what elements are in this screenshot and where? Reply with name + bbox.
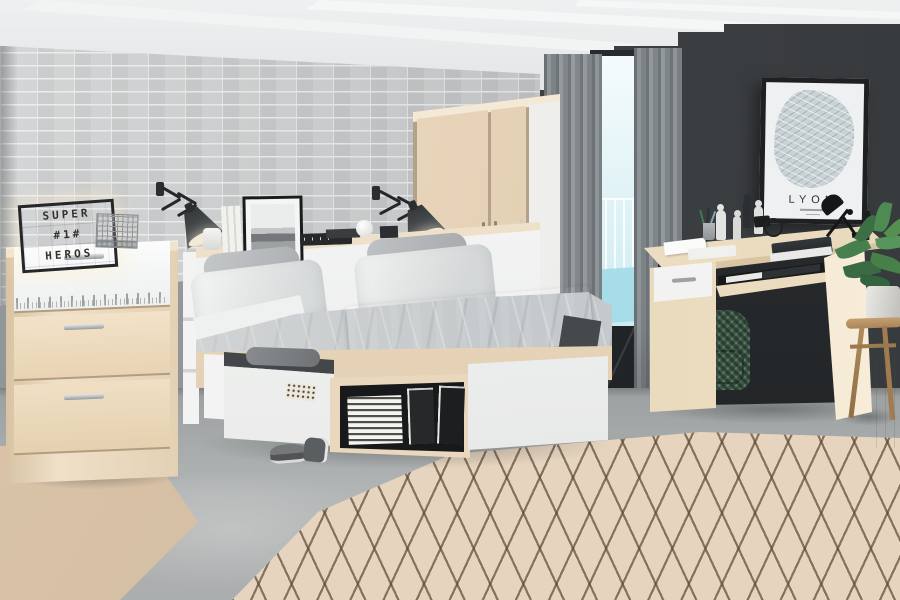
figurine [733,216,741,240]
clothes-in-drawer [246,347,321,368]
skyline-print [16,291,168,309]
shelf-speaker [203,228,221,250]
desk-lamp-joint [847,209,853,215]
shelf-magazines [326,228,360,238]
dotted-fabric [285,382,317,401]
pencil-cup [703,223,715,240]
wire-basket [95,213,138,248]
figurine-head [734,210,741,217]
dresser-drawer [14,311,170,382]
figurine-head [717,204,724,211]
bedroom-scene: LYON [0,0,900,600]
sneaker [303,437,329,463]
shelf-box [380,226,398,239]
pouf [876,352,900,448]
miniature-wheel [764,218,783,237]
figurine-dark [743,200,751,228]
poster-subtitle-line [806,214,820,215]
stacked-books [347,395,403,445]
storage-box [407,388,435,445]
city-map-graphic [773,89,855,188]
poster-title: LYON [764,193,862,207]
shelf-ball-lamp [356,220,373,237]
stool-seat [846,317,900,329]
figurine-head [744,194,751,201]
wall-lamp-right-mount [372,186,380,200]
shelf-books [221,206,243,253]
figurine [716,210,726,240]
storage-box [437,386,465,445]
figurine-head [755,200,762,207]
dresser-drawer [14,379,170,456]
map-poster: LYON [759,77,870,225]
